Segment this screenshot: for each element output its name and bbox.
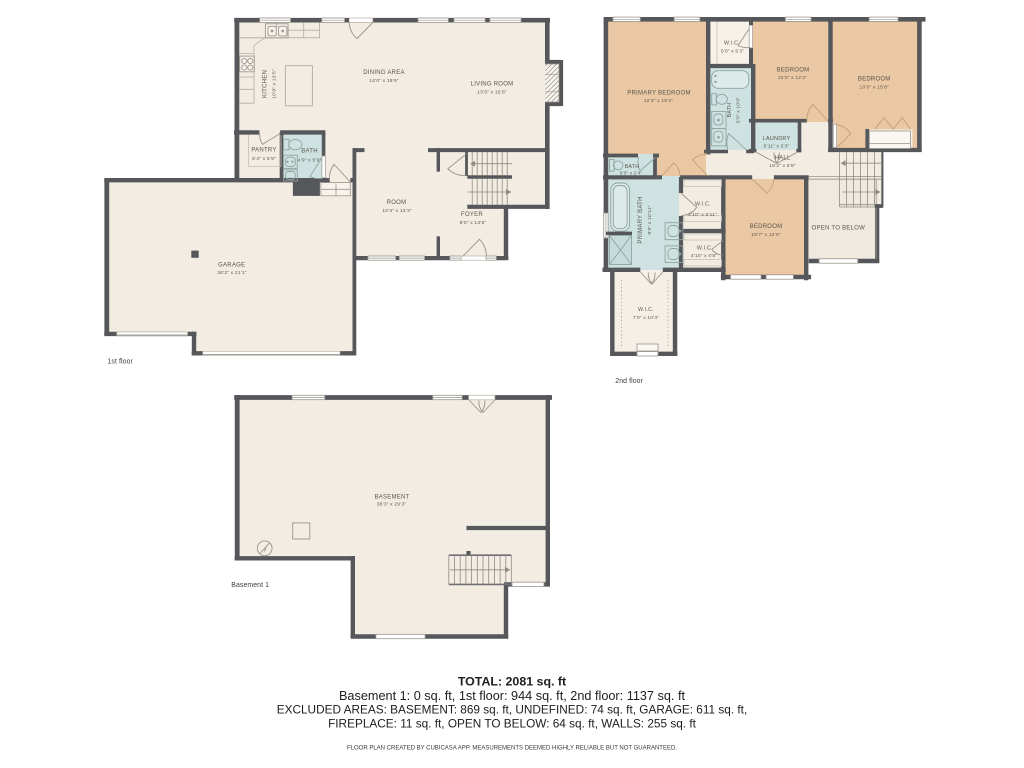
svg-text:BATH: BATH — [625, 164, 640, 170]
svg-text:FIREPLACE: 11 sq. ft, OPEN TO: FIREPLACE: 11 sq. ft, OPEN TO BELOW: 64 … — [328, 717, 697, 731]
svg-text:12’3” x 19’2”: 12’3” x 19’2” — [644, 98, 674, 104]
svg-text:PANTRY: PANTRY — [251, 148, 276, 154]
svg-text:KITCHEN: KITCHEN — [262, 70, 268, 98]
svg-text:5’0” x 5’3”: 5’0” x 5’3” — [721, 49, 744, 55]
svg-text:4’10” x 4’8”: 4’10” x 4’8” — [691, 253, 717, 259]
svg-text:9’0” x 10’11”: 9’0” x 10’11” — [647, 205, 653, 234]
svg-text:BEDROOM: BEDROOM — [777, 68, 810, 74]
svg-text:EXCLUDED AREAS: BASEMENT: 869: EXCLUDED AREAS: BASEMENT: 869 sq. ft, UN… — [277, 702, 748, 716]
svg-text:W.I.C.: W.I.C. — [695, 202, 711, 208]
svg-text:10’0” x 12’2”: 10’0” x 12’2” — [778, 75, 808, 81]
svg-text:FOYER: FOYER — [461, 212, 483, 218]
svg-text:GARAGE: GARAGE — [218, 262, 245, 268]
svg-text:10’0” x 15’8”: 10’0” x 15’8” — [860, 84, 890, 90]
svg-text:LIVING ROOM: LIVING ROOM — [471, 82, 514, 88]
svg-text:W.I.C.: W.I.C. — [724, 41, 740, 47]
svg-text:HALL: HALL — [775, 156, 791, 162]
svg-text:LAUNDRY: LAUNDRY — [763, 136, 791, 142]
svg-text:1st floor: 1st floor — [108, 359, 134, 366]
svg-text:W.I.C: W.I.C — [697, 246, 711, 252]
svg-text:Basement 1: 0 sq. ft, 1st floo: Basement 1: 0 sq. ft, 1st floor: 944 sq.… — [339, 689, 686, 703]
svg-text:6’0” x 2’4”: 6’0” x 2’4” — [620, 171, 643, 176]
svg-text:BASEMENT: BASEMENT — [374, 495, 409, 501]
svg-text:ROOM: ROOM — [387, 200, 407, 206]
svg-text:14’0” x 19’6”: 14’0” x 19’6” — [369, 78, 399, 84]
svg-text:PRIMARY BATH: PRIMARY BATH — [638, 196, 644, 243]
svg-text:10’9” x 13’5”: 10’9” x 13’5” — [272, 69, 278, 99]
svg-text:8’0” x 13’6”: 8’0” x 13’6” — [460, 220, 487, 226]
svg-text:7’0” x 10’4”: 7’0” x 10’4” — [633, 315, 659, 321]
svg-text:DINING AREA: DINING AREA — [363, 70, 404, 76]
svg-text:W.I.C.: W.I.C. — [638, 307, 654, 313]
svg-text:OPEN TO BELOW: OPEN TO BELOW — [812, 226, 865, 232]
svg-text:4’9” x 5’9”: 4’9” x 5’9” — [298, 158, 322, 164]
svg-text:16’2” x 6’8”: 16’2” x 6’8” — [769, 163, 796, 169]
svg-text:TOTAL: 2081 sq. ft: TOTAL: 2081 sq. ft — [458, 675, 566, 689]
svg-text:BEDROOM: BEDROOM — [750, 224, 783, 230]
svg-text:13’5” x 15’8”: 13’5” x 15’8” — [477, 90, 507, 96]
svg-text:BEDROOM: BEDROOM — [858, 77, 891, 83]
svg-text:10’7” x 12’0”: 10’7” x 12’0” — [751, 232, 781, 238]
svg-text:30’2” x 21’1”: 30’2” x 21’1” — [217, 270, 247, 276]
svg-text:BATH: BATH — [301, 149, 318, 155]
svg-text:Basement 1: Basement 1 — [231, 582, 269, 589]
svg-text:2nd floor: 2nd floor — [615, 378, 643, 385]
svg-text:FLOOR PLAN CREATED BY CUBICASA: FLOOR PLAN CREATED BY CUBICASA APP. MEAS… — [347, 745, 677, 751]
svg-text:5’4” x 5’9”: 5’4” x 5’9” — [252, 156, 276, 162]
svg-text:PRIMARY BEDROOM: PRIMARY BEDROOM — [627, 91, 691, 97]
svg-text:BATH: BATH — [727, 103, 733, 118]
svg-text:4’10” x 5’11”: 4’10” x 5’11” — [688, 212, 717, 218]
svg-text:38’3” x 29’3”: 38’3” x 29’3” — [377, 502, 407, 508]
svg-text:10’3” x 13’3”: 10’3” x 13’3” — [382, 208, 412, 214]
svg-text:5’11” x 3’3”: 5’11” x 3’3” — [764, 144, 790, 150]
svg-text:5’0” x 10’0”: 5’0” x 10’0” — [736, 97, 742, 123]
